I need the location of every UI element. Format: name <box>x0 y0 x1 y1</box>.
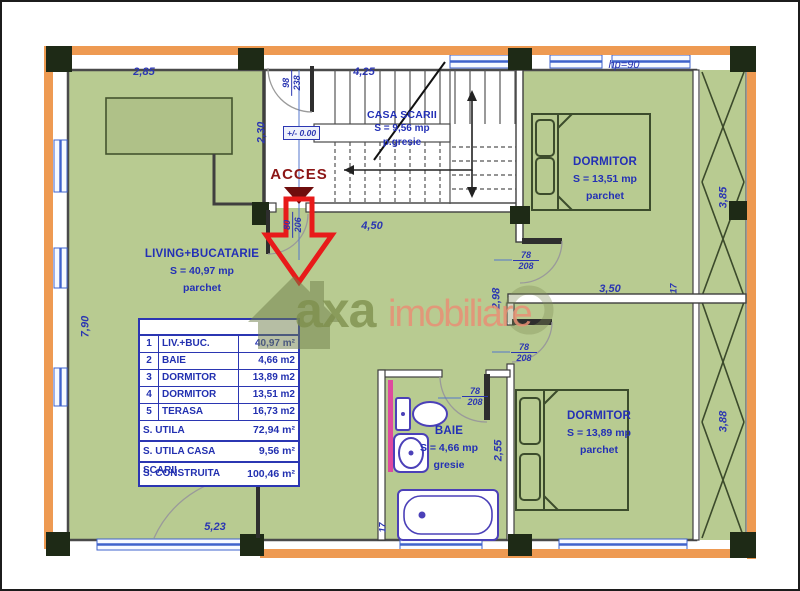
dim-door-bathroom: 78 208 <box>462 386 488 408</box>
room-stairs-name: CASA SCARII <box>332 108 472 122</box>
dim-door-entry-width: 98 <box>281 70 292 96</box>
dim-living-left: 7,90 <box>80 305 93 349</box>
room-bathroom-area: S = 4,66 mp <box>399 440 499 457</box>
row-value: 4,66 m2 <box>239 353 298 369</box>
row-num: 1 <box>140 336 159 352</box>
dim-hall-depth: 2,30 <box>256 113 269 153</box>
dim-corridor-width: 4,50 <box>342 220 402 233</box>
room-bathroom-floor: gresie <box>399 457 499 474</box>
door-leaf-entry <box>310 66 314 112</box>
level-marker: +/- 0.00 <box>283 126 320 140</box>
dim-wall-thickness-bath: 17 <box>377 514 390 542</box>
bathtub <box>398 490 498 540</box>
dim-door-hall-width: 80 <box>282 212 293 238</box>
row-label: LIV.+BUC. <box>159 336 239 352</box>
row-num: 3 <box>140 370 159 386</box>
room-bedroom-top-area: S = 13,51 mp <box>530 171 680 188</box>
room-bedroom-bottom-area: S = 13,89 mp <box>524 425 674 442</box>
dim-living-bottom: 5,23 <box>185 521 245 534</box>
room-living-area: S = 40,97 mp <box>112 263 292 280</box>
window-top-stairs <box>450 55 514 68</box>
row-num: 4 <box>140 387 159 403</box>
dim-door-bedroom-top-height: 208 <box>513 261 539 271</box>
room-bathroom-name: BAIE <box>399 423 499 440</box>
dim-wall-thickness-right: 17 <box>668 275 681 303</box>
table-row: 4 DORMITOR 13,51 m2 <box>140 387 298 404</box>
dim-mid-wall: 3,50 <box>580 283 640 296</box>
table-row: 2 BAIE 4,66 m2 <box>140 353 298 370</box>
dim-window-parapet: hp=90 <box>594 59 654 72</box>
room-label-bedroom-top: DORMITOR S = 13,51 mp parchet <box>530 154 680 205</box>
watermark-brand-light: imobiliare <box>388 293 531 336</box>
dim-door-hall-height: 206 <box>294 212 304 238</box>
area-table: 1 LIV.+BUC. 40,97 m² 2 BAIE 4,66 m2 3 DO… <box>138 318 300 487</box>
dim-door-bathroom-width: 78 <box>462 386 488 397</box>
room-living-floor: parchet <box>112 280 292 297</box>
row-num: 5 <box>140 404 159 420</box>
shower-screen <box>388 380 393 472</box>
row-value: 16,73 m2 <box>239 404 298 420</box>
dim-door-bedroom-bottom-width: 78 <box>511 342 537 353</box>
total-label: S. UTILA CASA SCARII <box>140 442 231 461</box>
room-stairs-floor: p.gresie <box>332 136 472 150</box>
table-row: 3 DORMITOR 13,89 m2 <box>140 370 298 387</box>
row-value: 13,89 m2 <box>239 370 298 386</box>
dim-terrace-top: 3,85 <box>718 176 731 220</box>
room-label-stairs: CASA SCARII S = 9,56 mp p.gresie <box>332 108 472 150</box>
dim-door-bedroom-top-width: 78 <box>513 250 539 261</box>
table-total-row: S. UTILA 72,94 m² <box>140 421 298 442</box>
watermark-brand-bold: axa <box>295 281 375 339</box>
window-left-b <box>54 248 67 288</box>
dim-door-hall: 80 206 <box>282 212 304 238</box>
row-value: 40,97 m² <box>239 336 298 352</box>
kitchen-counter <box>106 98 232 154</box>
dim-door-entry-height: 238 <box>293 70 303 96</box>
table-row: 1 LIV.+BUC. 40,97 m² <box>140 336 298 353</box>
room-living-name: LIVING+BUCATARIE <box>112 246 292 263</box>
row-label: BAIE <box>159 353 239 369</box>
dim-living-top: 2,85 <box>114 66 174 79</box>
dim-door-bedroom-bottom-height: 208 <box>511 353 537 363</box>
room-bedroom-top-name: DORMITOR <box>530 154 680 171</box>
table-total-row: S. UTILA CASA SCARII 9,56 m² <box>140 442 298 463</box>
total-label: S. CONSTRUITA <box>140 463 231 485</box>
dim-door-entry: 98 238 <box>281 70 303 96</box>
floor-plan-canvas: 2,85 4,25 2,30 hp=90 4,50 7,90 5,23 3,50… <box>0 0 800 591</box>
room-label-living: LIVING+BUCATARIE S = 40,97 mp parchet <box>112 246 292 297</box>
door-leaf-bedroom-top <box>522 238 562 244</box>
room-label-bedroom-bottom: DORMITOR S = 13,89 mp parchet <box>524 408 674 459</box>
window-left-a <box>54 140 67 192</box>
dim-door-bathroom-height: 208 <box>462 397 488 407</box>
total-value: 72,94 m² <box>231 421 298 440</box>
room-bedroom-bottom-name: DORMITOR <box>524 408 674 425</box>
area-table-header <box>140 320 298 336</box>
dim-door-bedroom-bottom: 78 208 <box>511 342 537 364</box>
table-row: 5 TERASA 16,73 m2 <box>140 404 298 421</box>
table-total-row: S. CONSTRUITA 100,46 m² <box>140 463 298 485</box>
total-value: 100,46 m² <box>231 463 298 485</box>
total-label: S. UTILA <box>140 421 231 440</box>
dim-terrace-bottom: 3,88 <box>718 400 731 444</box>
room-stairs-area: S = 9,56 mp <box>332 122 472 136</box>
window-left-c <box>54 368 67 406</box>
room-label-bathroom: BAIE S = 4,66 mp gresie <box>399 423 499 474</box>
room-bedroom-bottom-floor: parchet <box>524 442 674 459</box>
row-label: DORMITOR <box>159 387 239 403</box>
dim-stairs-top: 4,25 <box>334 66 394 79</box>
row-label: TERASA <box>159 404 239 420</box>
dim-door-bedroom-top: 78 208 <box>513 250 539 272</box>
total-value: 9,56 m² <box>231 442 298 461</box>
window-bottom-bedroom <box>559 539 687 550</box>
window-bottom-living <box>97 539 255 550</box>
row-num: 2 <box>140 353 159 369</box>
row-value: 13,51 m2 <box>239 387 298 403</box>
row-label: DORMITOR <box>159 370 239 386</box>
access-label: ACCES <box>264 166 334 183</box>
room-bedroom-top-floor: parchet <box>530 188 680 205</box>
